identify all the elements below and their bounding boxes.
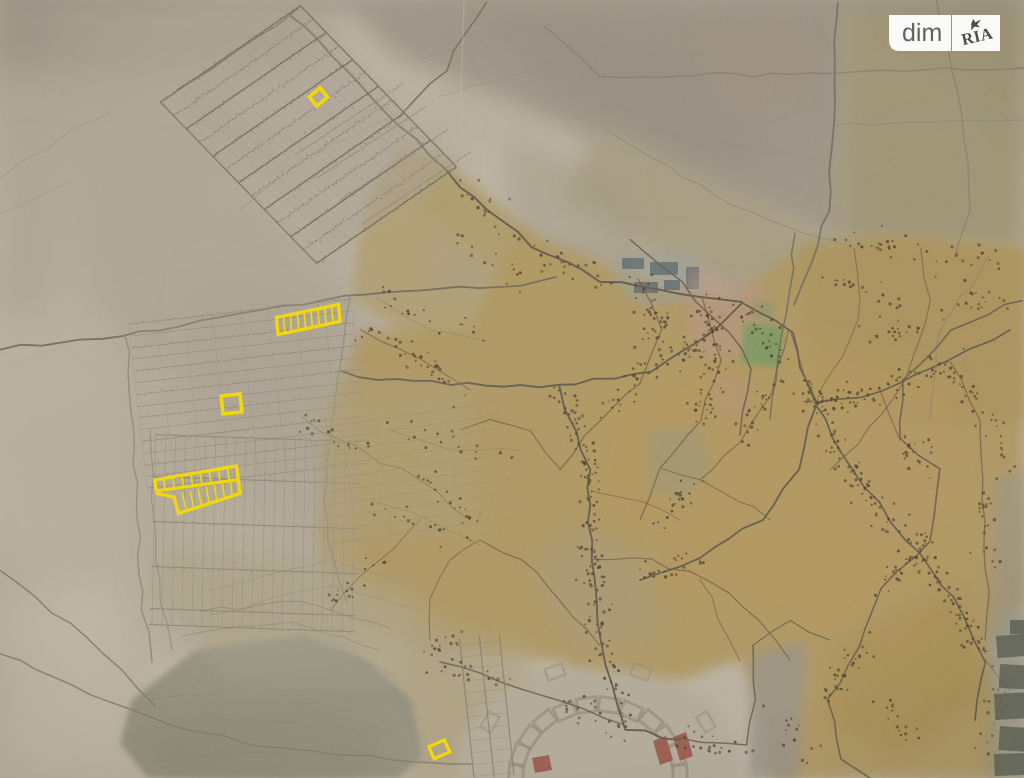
svg-text:dim: dim bbox=[902, 19, 942, 47]
